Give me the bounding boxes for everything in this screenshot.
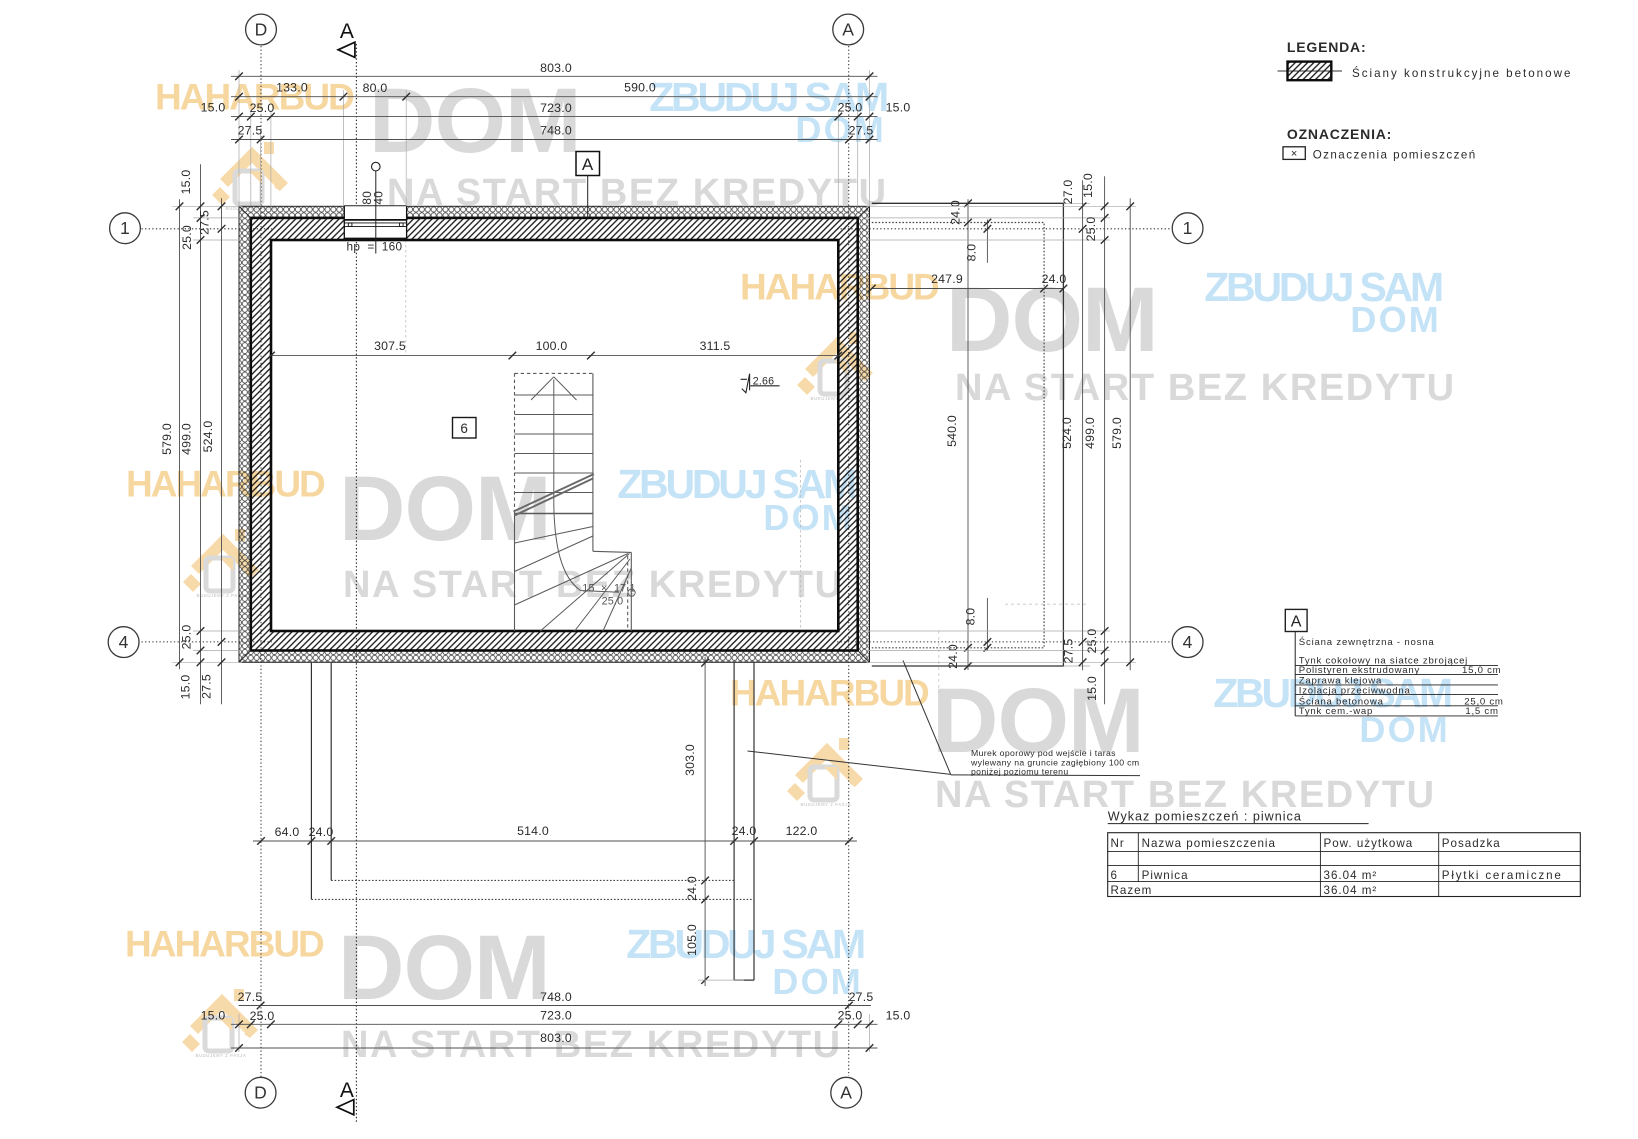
svg-text:100.0: 100.0: [536, 339, 568, 353]
svg-text:25.0: 25.0: [838, 1009, 863, 1023]
svg-text:25.0: 25.0: [838, 101, 863, 115]
svg-text:25.0: 25.0: [602, 596, 624, 608]
svg-text:27.0: 27.0: [1061, 180, 1075, 205]
svg-text:Ściana zewnętrzna - nosna: Ściana zewnętrzna - nosna: [1299, 636, 1435, 648]
svg-text:524.0: 524.0: [201, 421, 215, 453]
svg-text:15.0: 15.0: [179, 170, 193, 195]
svg-text:24.0: 24.0: [946, 644, 960, 669]
svg-text:A: A: [582, 155, 594, 174]
svg-text:27.5: 27.5: [1062, 639, 1076, 664]
svg-text:15.0: 15.0: [201, 1009, 226, 1023]
svg-text:64.0: 64.0: [275, 825, 300, 839]
svg-text:Tynk cem.-wap: Tynk cem.-wap: [1299, 706, 1373, 717]
svg-text:Płytki ceramiczne: Płytki ceramiczne: [1442, 869, 1563, 882]
svg-text:Posadzka: Posadzka: [1442, 837, 1501, 850]
svg-text:24.0: 24.0: [1042, 272, 1067, 286]
svg-text:A: A: [340, 20, 354, 43]
svg-text:8.0: 8.0: [965, 244, 979, 262]
svg-text:311.5: 311.5: [700, 339, 731, 353]
svg-text:poniżej poziomu terenu: poniżej poziomu terenu: [971, 767, 1069, 777]
svg-text:A: A: [1291, 614, 1302, 631]
svg-text:D: D: [255, 20, 268, 40]
svg-text:15.0: 15.0: [179, 675, 193, 700]
svg-text:307.5: 307.5: [374, 339, 406, 353]
svg-text:723.0: 723.0: [540, 1009, 572, 1023]
svg-text:Pow. użytkowa: Pow. użytkowa: [1324, 837, 1414, 850]
svg-text:524.0: 524.0: [1060, 417, 1074, 449]
svg-text:Ściany konstrukcyjne betonowe: Ściany konstrukcyjne betonowe: [1352, 67, 1572, 80]
svg-text:723.0: 723.0: [540, 101, 572, 115]
svg-text:24.0: 24.0: [309, 825, 334, 839]
svg-text:579.0: 579.0: [1110, 417, 1124, 449]
svg-text:514.0: 514.0: [517, 824, 549, 838]
svg-text:27.5: 27.5: [238, 990, 263, 1004]
svg-text:803.0: 803.0: [540, 61, 572, 75]
svg-text:15.0: 15.0: [201, 101, 226, 115]
svg-text:15.0: 15.0: [886, 1009, 911, 1023]
svg-text:Murek oporowy pod wejście i ta: Murek oporowy pod wejście i taras: [971, 748, 1116, 758]
svg-text:Wykaz pomieszczeń : piwnica: Wykaz pomieszczeń : piwnica: [1108, 810, 1302, 824]
svg-text:105.0: 105.0: [685, 924, 699, 956]
svg-text:DOM: DOM: [369, 70, 581, 172]
svg-text:540.0: 540.0: [945, 415, 959, 447]
svg-text:25.0: 25.0: [180, 225, 194, 250]
svg-text:1: 1: [120, 218, 130, 238]
svg-text:15.0: 15.0: [886, 101, 911, 115]
svg-text:579.0: 579.0: [160, 423, 174, 455]
svg-text:25.0: 25.0: [1084, 217, 1098, 242]
svg-text:NA START BEZ KREDYTU: NA START BEZ KREDYTU: [341, 1024, 842, 1066]
svg-text:NA START BEZ KREDYTU: NA START BEZ KREDYTU: [955, 367, 1456, 409]
svg-text:748.0: 748.0: [540, 990, 572, 1004]
svg-text:BUDUJEMY Z PASJA: BUDUJEMY Z PASJA: [800, 802, 851, 807]
svg-text:1: 1: [1183, 218, 1193, 238]
svg-text:25.0: 25.0: [1085, 629, 1099, 654]
svg-text:25.0: 25.0: [250, 1009, 275, 1023]
svg-text:Nr: Nr: [1111, 837, 1125, 850]
svg-text:D: D: [254, 1083, 267, 1103]
svg-text:DOM: DOM: [338, 917, 550, 1019]
svg-text:36.04 m²: 36.04 m²: [1324, 869, 1378, 882]
svg-text:A: A: [842, 20, 854, 40]
svg-text:Nazwa pomieszczenia: Nazwa pomieszczenia: [1142, 837, 1276, 850]
svg-text:A: A: [840, 1083, 852, 1103]
svg-text:24.0: 24.0: [732, 824, 757, 838]
svg-text:590.0: 590.0: [624, 81, 656, 95]
svg-text:A: A: [340, 1079, 354, 1102]
svg-text:Razem: Razem: [1111, 884, 1153, 897]
svg-text:24.0: 24.0: [685, 876, 699, 901]
svg-text:Oznaczenia pomieszczeń: Oznaczenia pomieszczeń: [1313, 148, 1477, 161]
svg-text:4: 4: [119, 632, 129, 652]
svg-text:27.5: 27.5: [198, 210, 212, 235]
svg-text:27.5: 27.5: [849, 990, 874, 1004]
svg-text:1,5 cm: 1,5 cm: [1465, 706, 1498, 717]
svg-text:2.66: 2.66: [753, 375, 774, 387]
svg-text:×: ×: [1291, 148, 1298, 160]
svg-text:6: 6: [1111, 869, 1118, 882]
svg-text:25.0: 25.0: [250, 101, 275, 115]
svg-text:25.0: 25.0: [180, 625, 194, 650]
svg-text:499.0: 499.0: [1083, 417, 1097, 449]
svg-text:27.5: 27.5: [200, 674, 214, 699]
svg-text:4: 4: [1183, 632, 1193, 652]
svg-text:499.0: 499.0: [180, 423, 194, 455]
svg-text:8.0: 8.0: [964, 608, 978, 626]
svg-text:36.04 m²: 36.04 m²: [1324, 884, 1378, 897]
svg-text:HAHARBUD: HAHARBUD: [730, 673, 929, 714]
svg-text:133.0: 133.0: [276, 81, 308, 95]
svg-text:HAHARBUD: HAHARBUD: [126, 464, 325, 505]
svg-text:15.0: 15.0: [1081, 173, 1095, 198]
svg-text:HAHARBUD: HAHARBUD: [125, 924, 324, 965]
svg-text:15.0: 15.0: [1085, 676, 1099, 701]
svg-text:27.5: 27.5: [849, 124, 874, 138]
svg-text:80.0: 80.0: [363, 81, 388, 95]
svg-text:LEGENDA:: LEGENDA:: [1287, 39, 1367, 55]
svg-text:27.5: 27.5: [238, 124, 263, 138]
svg-text:6: 6: [460, 421, 468, 436]
svg-text:40: 40: [371, 191, 385, 205]
svg-text:122.0: 122.0: [786, 824, 818, 838]
svg-text:803.0: 803.0: [540, 1031, 572, 1045]
svg-text:Piwnica: Piwnica: [1142, 869, 1189, 882]
svg-text:OZNACZENIA:: OZNACZENIA:: [1287, 126, 1392, 142]
svg-text:303.0: 303.0: [683, 744, 697, 776]
svg-text:BUDUJEMY Z PASJA: BUDUJEMY Z PASJA: [195, 1053, 246, 1058]
svg-text:748.0: 748.0: [540, 124, 572, 138]
svg-text:247.9: 247.9: [931, 272, 963, 286]
svg-text:24.0: 24.0: [949, 200, 963, 225]
svg-text:hp = 160: hp = 160: [347, 240, 403, 254]
svg-text:DOM: DOM: [1350, 299, 1441, 340]
